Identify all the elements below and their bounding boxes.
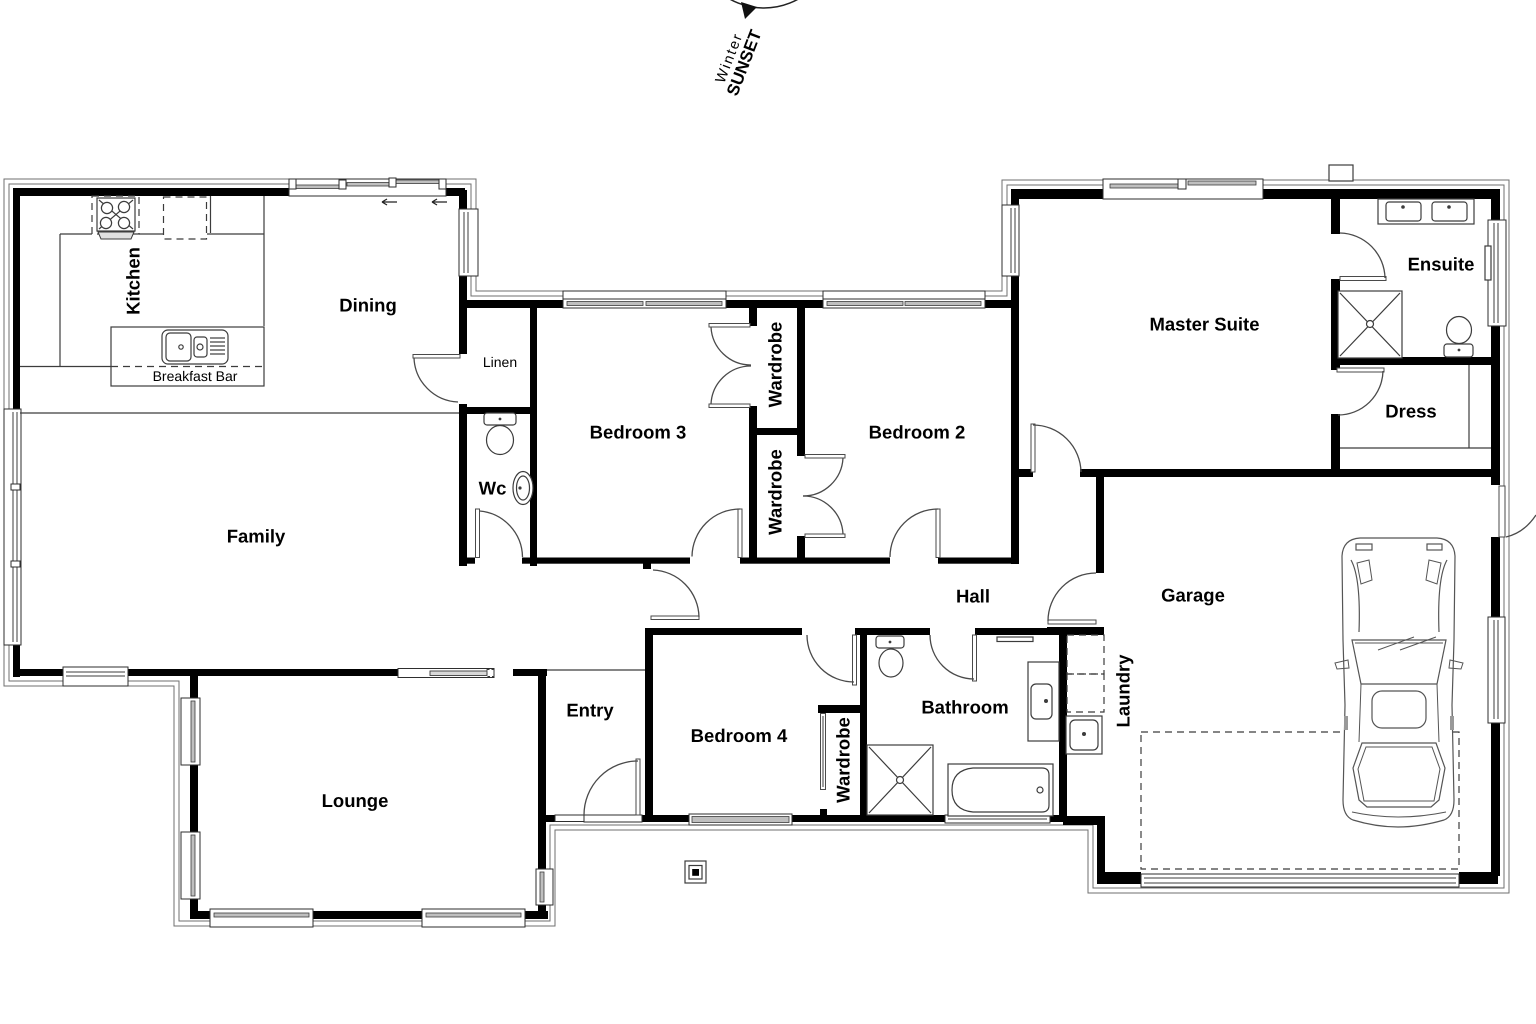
svg-text:Wardrobe: Wardrobe (833, 717, 854, 803)
svg-text:Linen: Linen (483, 354, 517, 370)
svg-text:Laundry: Laundry (1113, 654, 1134, 728)
svg-text:Bedroom 3: Bedroom 3 (590, 422, 687, 443)
svg-text:Wardrobe: Wardrobe (765, 449, 786, 535)
svg-text:Kitchen: Kitchen (123, 247, 144, 315)
svg-text:Bedroom 4: Bedroom 4 (691, 725, 788, 746)
svg-text:Hall: Hall (956, 586, 990, 607)
svg-text:Breakfast Bar: Breakfast Bar (153, 368, 238, 384)
svg-text:Family: Family (227, 526, 286, 547)
svg-text:Ensuite: Ensuite (1408, 254, 1475, 275)
svg-text:Garage: Garage (1161, 585, 1225, 606)
svg-text:Wardrobe: Wardrobe (765, 322, 786, 408)
svg-text:Lounge: Lounge (322, 790, 389, 811)
svg-text:Dress: Dress (1385, 401, 1436, 422)
svg-text:Wc: Wc (479, 478, 507, 499)
svg-text:Master Suite: Master Suite (1149, 314, 1259, 335)
svg-text:Bathroom: Bathroom (921, 697, 1008, 718)
svg-text:Entry: Entry (566, 700, 614, 721)
svg-text:Dining: Dining (339, 295, 397, 316)
svg-text:Bedroom 2: Bedroom 2 (869, 422, 966, 443)
